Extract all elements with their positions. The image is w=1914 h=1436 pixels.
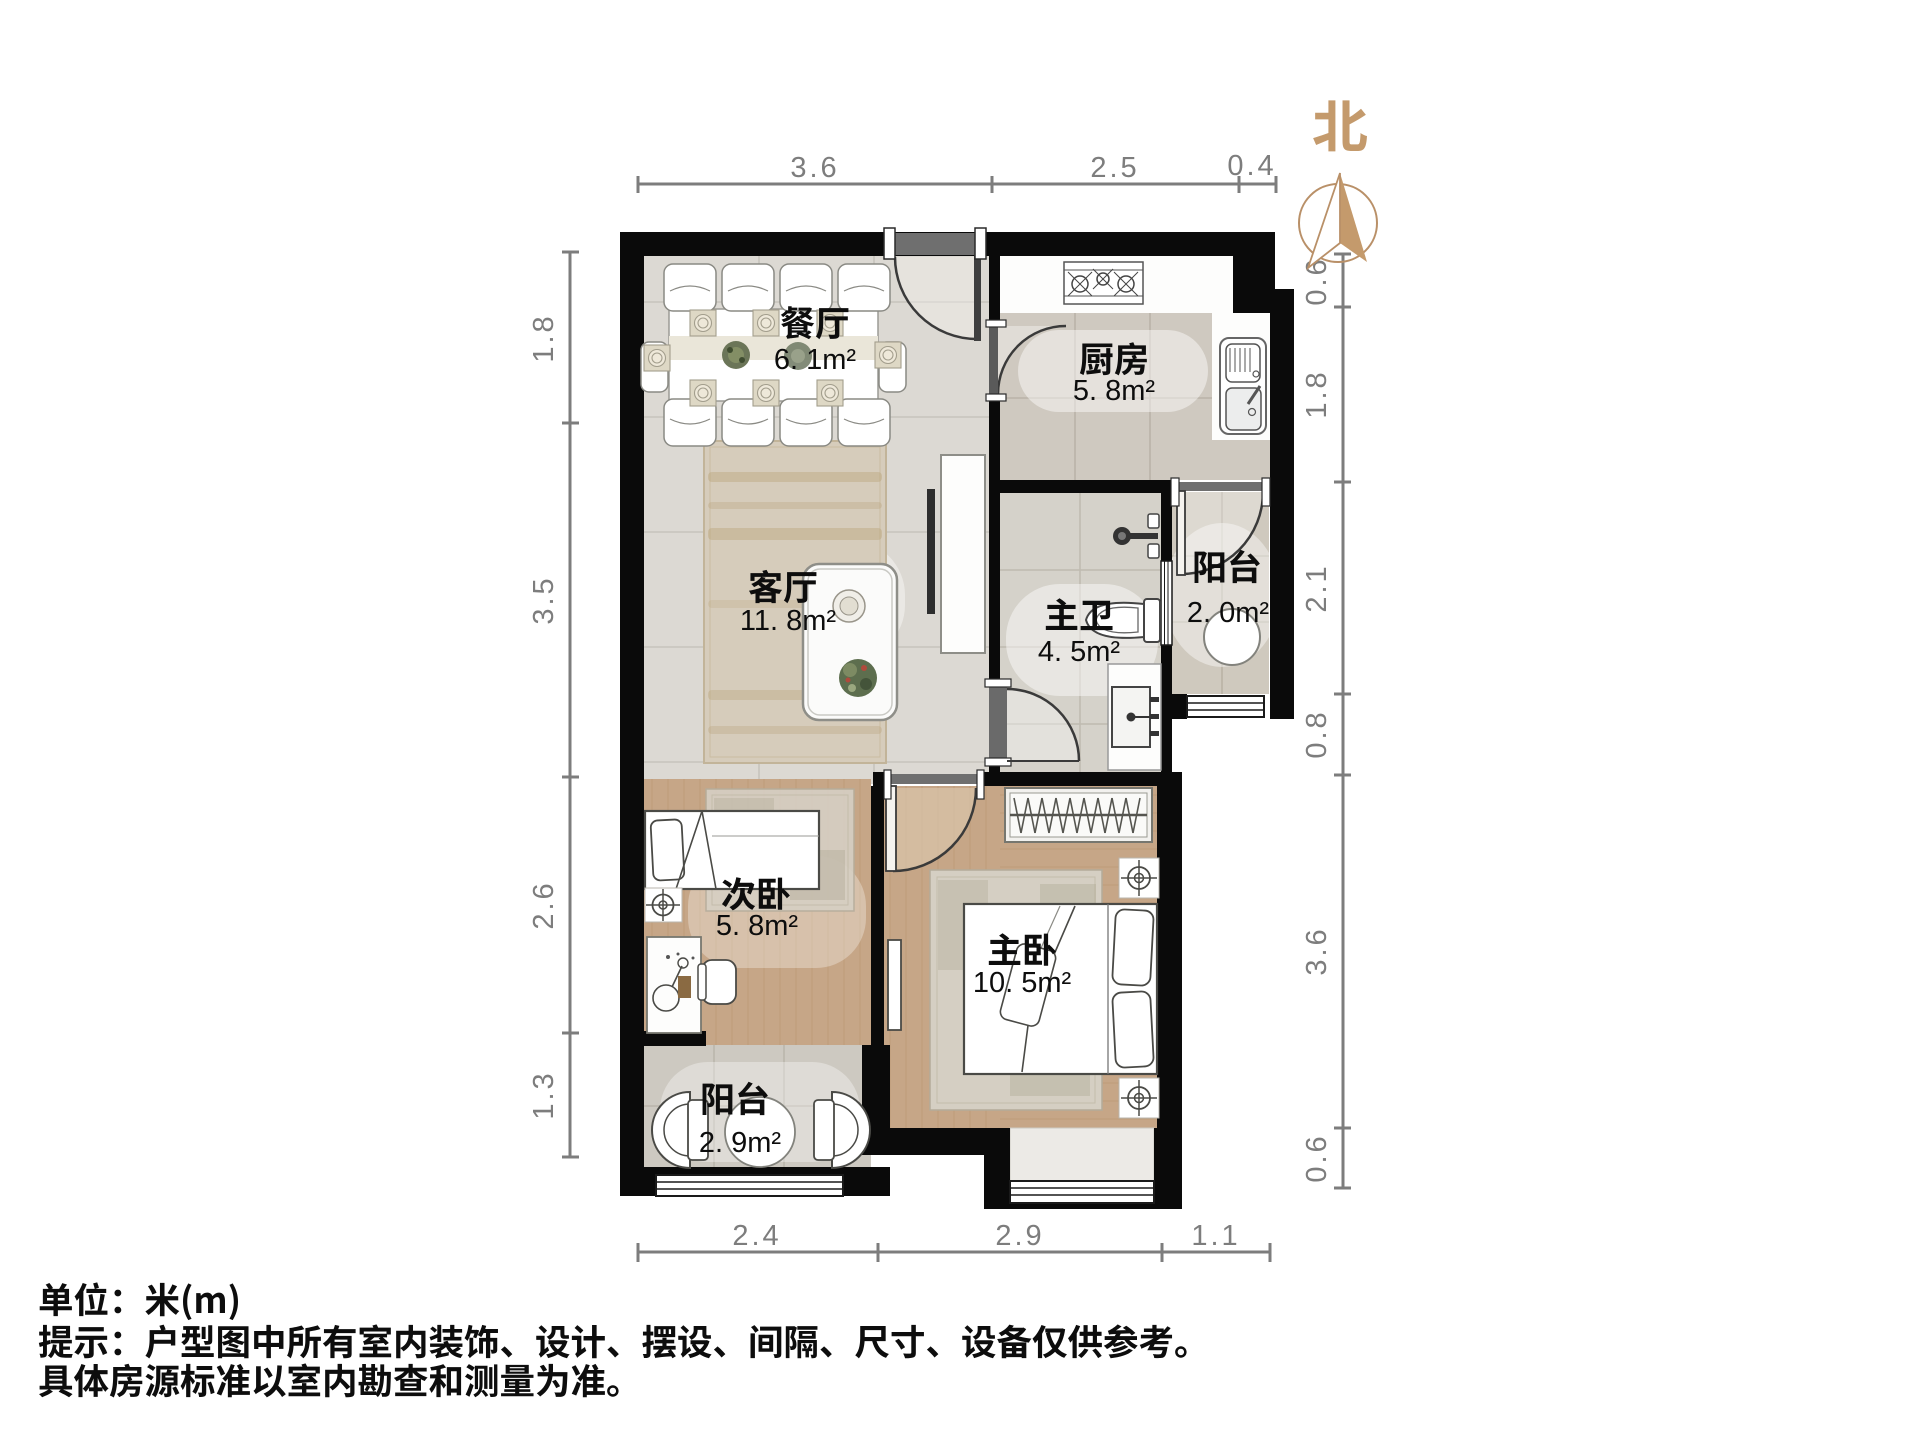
svg-text:4. 5m²: 4. 5m² (1038, 636, 1121, 668)
svg-text:0.6: 0.6 (1301, 256, 1333, 305)
svg-text:5. 8m²: 5. 8m² (1073, 375, 1156, 407)
svg-text:2.5: 2.5 (1090, 152, 1139, 184)
svg-text:3.6: 3.6 (790, 152, 839, 184)
svg-text:2. 9m²: 2. 9m² (699, 1127, 782, 1159)
svg-text:1.3: 1.3 (528, 1070, 560, 1119)
svg-text:6. 1m²: 6. 1m² (774, 344, 857, 376)
svg-text:1.8: 1.8 (528, 313, 560, 362)
svg-text:0.4: 0.4 (1227, 150, 1276, 182)
svg-text:1.1: 1.1 (1191, 1220, 1240, 1252)
svg-text:2. 0m²: 2. 0m² (1187, 597, 1270, 629)
svg-text:10. 5m²: 10. 5m² (973, 967, 1072, 999)
svg-text:2.6: 2.6 (528, 880, 560, 929)
svg-text:0.8: 0.8 (1301, 709, 1333, 758)
svg-text:2.9: 2.9 (995, 1220, 1044, 1252)
svg-text:0.6: 0.6 (1301, 1133, 1333, 1182)
svg-text:3.6: 3.6 (1301, 926, 1333, 975)
svg-text:11. 8m²: 11. 8m² (740, 605, 837, 637)
svg-text:5. 8m²: 5. 8m² (716, 910, 799, 942)
svg-text:3.5: 3.5 (528, 575, 560, 624)
svg-text:2.1: 2.1 (1301, 563, 1333, 612)
svg-text:1.8: 1.8 (1301, 369, 1333, 418)
svg-text:2.4: 2.4 (732, 1220, 781, 1252)
